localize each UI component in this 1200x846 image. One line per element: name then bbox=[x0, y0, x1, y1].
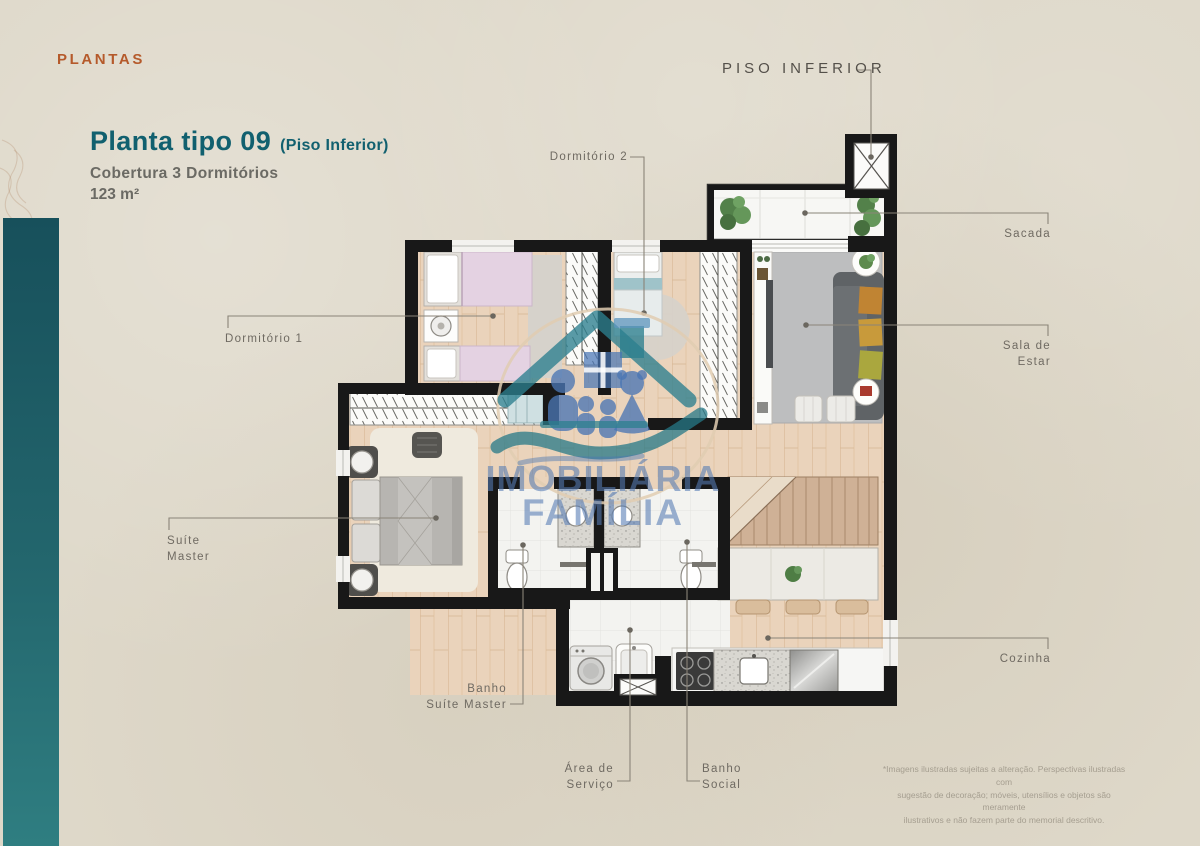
master-bath-toilet bbox=[506, 550, 528, 591]
washing-machine bbox=[570, 646, 612, 690]
label-area-de-servico: Área de Serviço bbox=[565, 761, 614, 793]
house-window-icon bbox=[584, 352, 622, 388]
plan-subtitle: Cobertura 3 Dormitórios bbox=[90, 165, 278, 183]
legal-disclaimer: *Imagens ilustradas sujeitas a alteração… bbox=[880, 763, 1128, 827]
side-table-plant bbox=[852, 248, 880, 276]
bedroom1-nightstand bbox=[424, 310, 458, 342]
kitchen-counter bbox=[672, 648, 884, 692]
plan-title-note: (Piso Inferior) bbox=[280, 137, 389, 154]
social-bath-shower-bar bbox=[692, 562, 716, 567]
service-duct bbox=[614, 674, 662, 700]
section-eyebrow: PLANTAS bbox=[57, 51, 145, 68]
label-dormitorio-2: Dormitório 2 bbox=[550, 149, 628, 165]
label-sacada: Sacada bbox=[1004, 226, 1051, 242]
label-dormitorio-1: Dormitório 1 bbox=[225, 331, 303, 347]
label-banho-suite-master: Banho Suíte Master bbox=[426, 681, 507, 713]
floor-callout-label: PISO INFERIOR bbox=[722, 60, 886, 77]
tv bbox=[766, 280, 773, 368]
social-bath-vanity bbox=[604, 487, 640, 547]
social-bath-toilet bbox=[680, 550, 702, 591]
bath-duct bbox=[586, 548, 618, 596]
label-suite-master: Suíte Master bbox=[167, 533, 210, 565]
bedroom1-bed-top bbox=[424, 252, 532, 306]
kitchen-island bbox=[718, 548, 878, 600]
label-banho-social: Banho Social bbox=[702, 761, 742, 793]
label-cozinha: Cozinha bbox=[1000, 651, 1051, 667]
plantas-page: PLANTAS Planta tipo 09(Piso Inferior) Co… bbox=[0, 0, 1200, 846]
side-table-book bbox=[853, 379, 879, 405]
suite-nightstand-bottom bbox=[346, 564, 378, 596]
island-stools bbox=[736, 600, 868, 614]
bedroom1-bed-bottom bbox=[424, 346, 530, 381]
kitchen-sink bbox=[740, 658, 768, 684]
suite-nightstand-top bbox=[346, 446, 378, 478]
plan-area: 123 m² bbox=[90, 186, 139, 204]
teal-accent-bar bbox=[3, 218, 59, 846]
master-bath-shower-bar bbox=[560, 562, 588, 567]
stairs bbox=[728, 477, 878, 545]
plan-title: Planta tipo 09 bbox=[90, 126, 271, 156]
logo-bench bbox=[540, 421, 648, 428]
suite-master-furniture bbox=[346, 428, 478, 596]
living-room-window bbox=[752, 240, 850, 252]
label-sala-de-estar: Sala de Estar bbox=[1003, 338, 1051, 370]
plan-title-row: Planta tipo 09(Piso Inferior) bbox=[90, 126, 389, 157]
